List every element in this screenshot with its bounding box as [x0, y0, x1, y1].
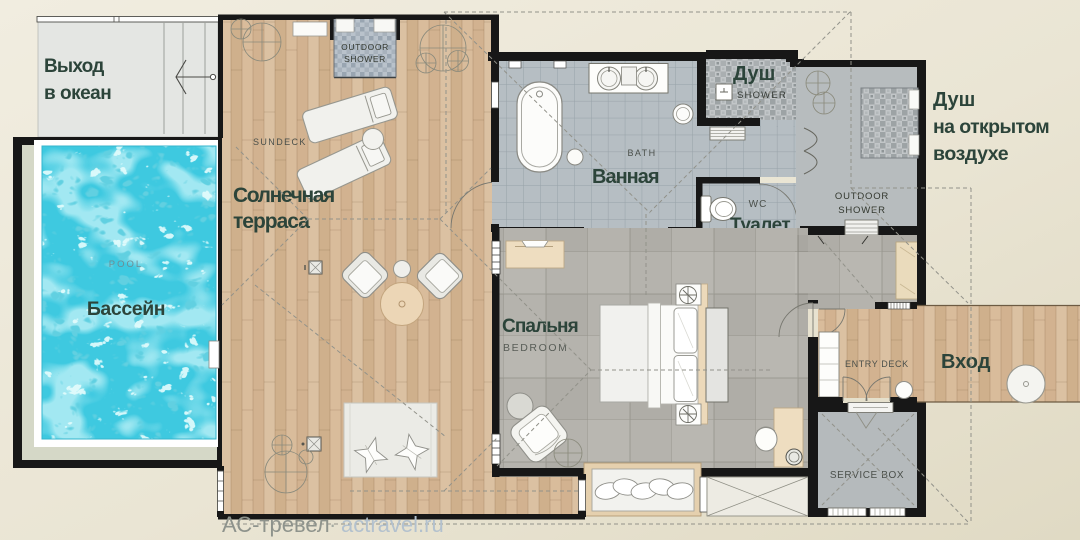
- svg-text:POOL: POOL: [109, 259, 143, 270]
- svg-text:WC: WC: [749, 199, 768, 210]
- svg-text:SUNDECK: SUNDECK: [253, 137, 307, 147]
- svg-text:воздухе: воздухе: [933, 143, 1009, 165]
- svg-text:Душ: Душ: [933, 89, 975, 111]
- svg-text:Душ: Душ: [733, 63, 775, 85]
- svg-text:OUTDOOR: OUTDOOR: [835, 191, 889, 202]
- svg-text:SHOWER: SHOWER: [838, 205, 886, 216]
- svg-text:ENTRY DECK: ENTRY DECK: [845, 359, 909, 369]
- svg-text:в океан: в океан: [44, 83, 111, 104]
- svg-text:Вход: Вход: [941, 351, 991, 373]
- svg-text:actravel.ru: actravel.ru: [341, 512, 444, 537]
- svg-text:АС-тревел: АС-тревел: [222, 512, 330, 537]
- svg-text:на открытом: на открытом: [933, 116, 1049, 138]
- svg-text:SERVICE BOX: SERVICE BOX: [830, 470, 904, 481]
- svg-text:терраса: терраса: [233, 210, 310, 233]
- svg-text:OUTDOOR: OUTDOOR: [341, 42, 389, 52]
- svg-text:SHOWER: SHOWER: [737, 90, 787, 101]
- svg-text:Бассейн: Бассейн: [87, 298, 165, 320]
- svg-text:BEDROOM: BEDROOM: [503, 342, 568, 354]
- svg-text:SHOWER: SHOWER: [344, 54, 386, 64]
- svg-text:Солнечная: Солнечная: [233, 184, 334, 207]
- svg-text:BATH: BATH: [628, 148, 657, 158]
- svg-text:Выход: Выход: [44, 56, 104, 77]
- svg-text:·: ·: [329, 512, 336, 537]
- svg-text:Ванная: Ванная: [592, 166, 659, 188]
